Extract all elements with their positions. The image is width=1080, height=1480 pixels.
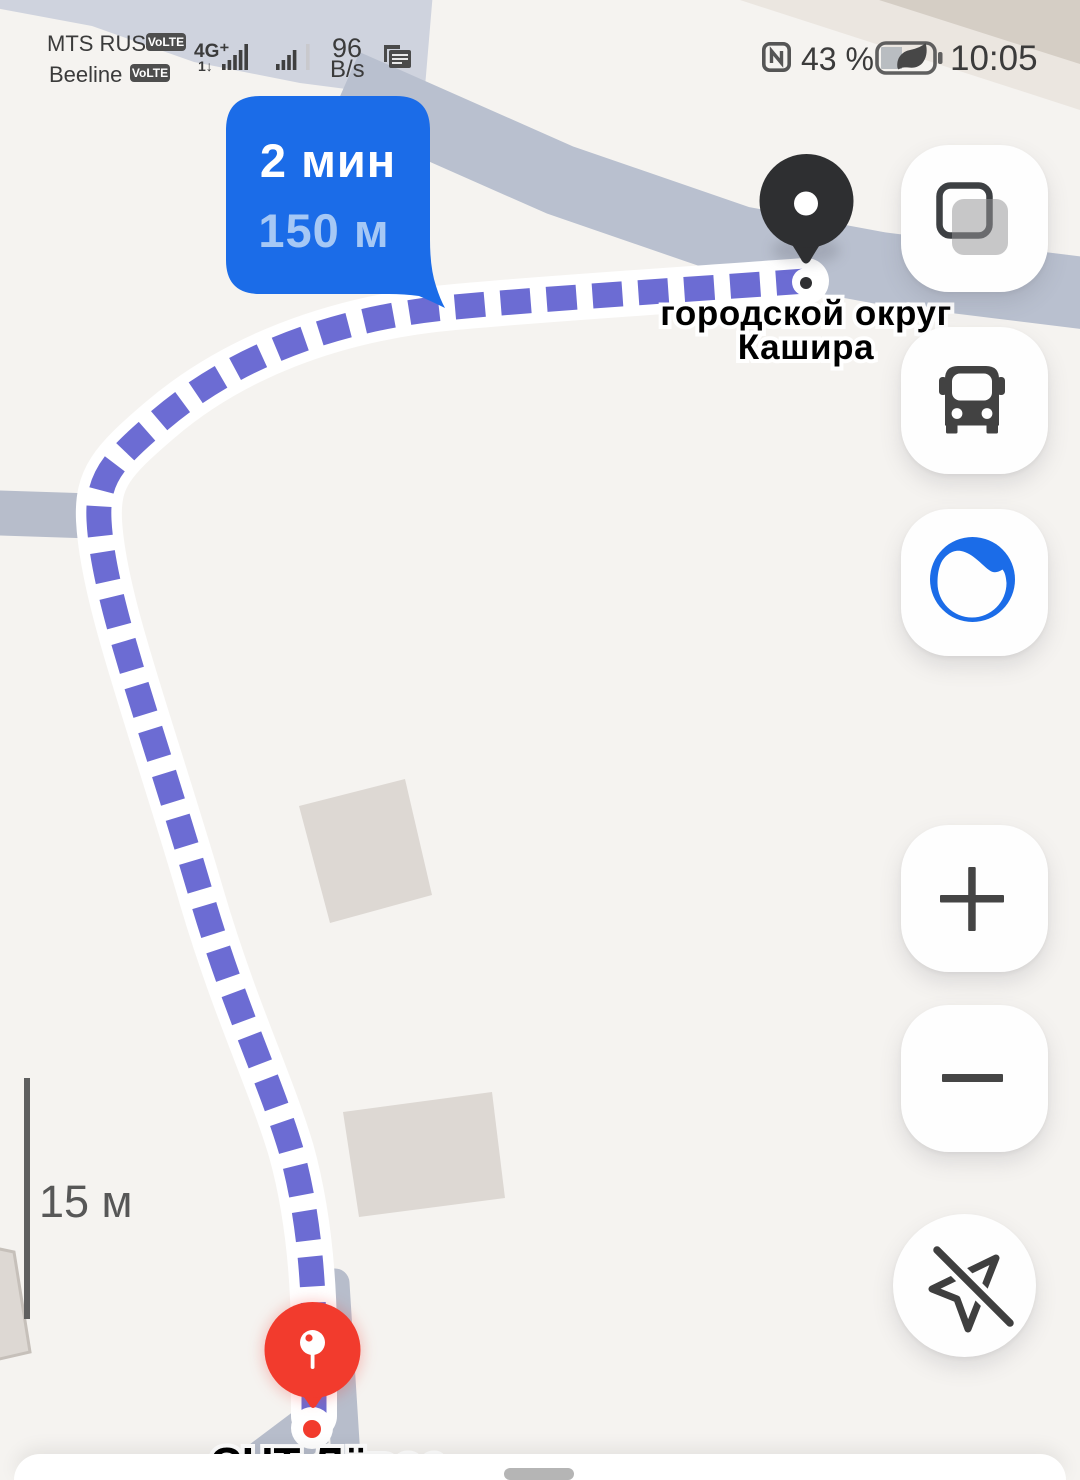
svg-text:2 мин: 2 мин (260, 134, 396, 187)
svg-text:15 м: 15 м (39, 1176, 133, 1227)
svg-text:150 м: 150 м (258, 204, 389, 257)
svg-text:Кашира: Кашира (738, 328, 874, 367)
